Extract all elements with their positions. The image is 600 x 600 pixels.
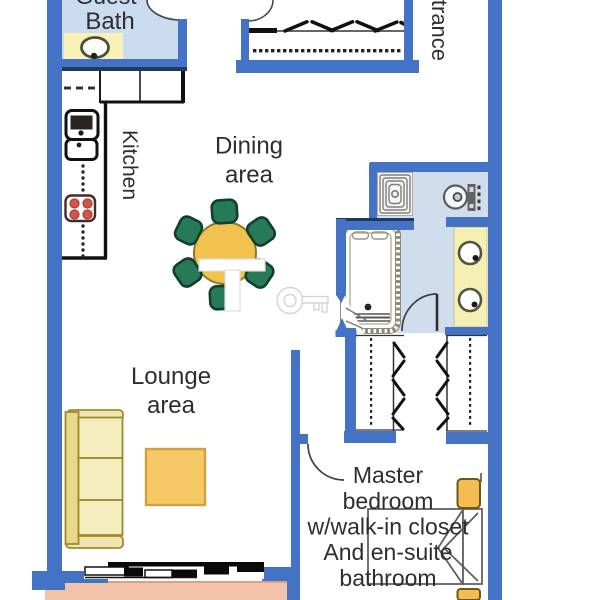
svg-text:And en-suite: And en-suite: [323, 539, 452, 565]
svg-text:area: area: [225, 162, 274, 189]
svg-text:bathroom: bathroom: [339, 565, 436, 591]
svg-text:Kitchen: Kitchen: [118, 130, 141, 200]
svg-text:area: area: [147, 392, 196, 419]
svg-text:Master: Master: [353, 462, 424, 488]
svg-text:bedroom: bedroom: [343, 488, 434, 514]
svg-text:w/walk-in closet: w/walk-in closet: [306, 514, 469, 540]
svg-text:Lounge: Lounge: [131, 363, 211, 390]
svg-text:Entrance: Entrance: [427, 0, 452, 61]
svg-text:Dining: Dining: [215, 133, 283, 160]
svg-text:Bath: Bath: [85, 8, 134, 35]
